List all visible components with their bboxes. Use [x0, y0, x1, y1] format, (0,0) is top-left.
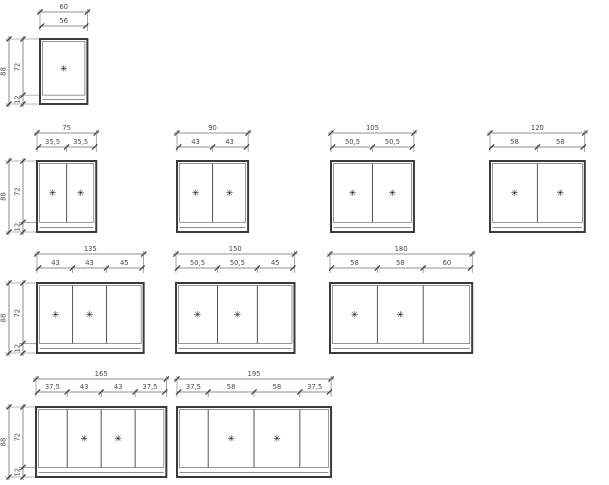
dim-label-total-width: 60: [59, 3, 68, 11]
dim-label-door-width: 35,5: [73, 138, 88, 146]
dim-label-total-height: 88: [0, 67, 8, 76]
dim-label-door-width: 45: [120, 259, 129, 267]
dim-label-door-width: 56: [59, 17, 68, 25]
dim-label-door-width: 60: [443, 259, 452, 267]
door-knob-icon: ✳: [194, 310, 202, 320]
door-knob-icon: ✳: [234, 310, 242, 320]
dim-label-plinth-height: 12: [14, 468, 22, 477]
dim-label-total-width: 165: [95, 370, 108, 378]
dim-label-total-width: 135: [84, 245, 97, 253]
dim-label-total-width: 180: [395, 245, 408, 253]
dim-label-door-height: 72: [14, 187, 22, 196]
dim-label-total-height: 88: [0, 314, 8, 323]
dim-label-door-height: 72: [14, 433, 22, 442]
dim-label-plinth-height: 12: [14, 344, 22, 353]
dim-label-door-width: 35,5: [45, 138, 60, 146]
dim-label-door-width: 50,5: [385, 138, 400, 146]
dim-label-door-width: 50,5: [230, 259, 245, 267]
dim-label-door-width: 58: [396, 259, 405, 267]
dim-label-plinth-height: 12: [14, 95, 22, 104]
dim-label-door-width: 45: [271, 259, 280, 267]
dim-label-total-width: 120: [531, 124, 544, 132]
door-knob-icon: ✳: [557, 189, 565, 199]
dim-label-total-width: 75: [62, 124, 71, 132]
door-knob-icon: ✳: [227, 434, 235, 444]
dim-label-door-height: 72: [14, 63, 22, 72]
dim-label-door-width: 43: [225, 138, 234, 146]
door-knob-icon: ✳: [60, 64, 68, 74]
dim-label-door-width: 58: [510, 138, 519, 146]
door-knob-icon: ✳: [397, 310, 405, 320]
diagram-svg: 6056✳8872127535,535,5✳✳904343✳✳10550,550…: [0, 0, 609, 485]
dim-label-door-width: 37,5: [186, 383, 201, 391]
dim-label-door-height: 72: [14, 309, 22, 318]
dim-label-door-width: 58: [556, 138, 565, 146]
door-knob-icon: ✳: [114, 434, 122, 444]
door-knob-icon: ✳: [77, 189, 85, 199]
dim-label-door-width: 37,5: [307, 383, 322, 391]
dim-label-door-width: 43: [85, 259, 94, 267]
door-knob-icon: ✳: [273, 434, 281, 444]
dim-label-door-width: 43: [191, 138, 200, 146]
door-knob-icon: ✳: [49, 189, 57, 199]
dim-label-total-width: 90: [208, 124, 217, 132]
dim-label-total-width: 150: [229, 245, 242, 253]
dim-label-plinth-height: 12: [14, 223, 22, 232]
drawing-sheet: 6056✳8872127535,535,5✳✳904343✳✳10550,550…: [0, 0, 609, 485]
dim-label-door-width: 43: [80, 383, 89, 391]
dim-label-total-height: 88: [0, 192, 8, 201]
door-knob-icon: ✳: [52, 310, 60, 320]
dim-label-door-width: 37,5: [45, 383, 60, 391]
dim-label-door-width: 37,5: [142, 383, 157, 391]
dim-label-door-width: 43: [51, 259, 60, 267]
door-knob-icon: ✳: [226, 189, 234, 199]
dim-label-door-width: 43: [114, 383, 123, 391]
door-knob-icon: ✳: [80, 434, 88, 444]
door-knob-icon: ✳: [86, 310, 94, 320]
dim-label-door-width: 50,5: [345, 138, 360, 146]
dim-label-total-width: 195: [248, 370, 261, 378]
dim-label-door-width: 58: [273, 383, 282, 391]
door-knob-icon: ✳: [349, 189, 357, 199]
door-knob-icon: ✳: [192, 189, 200, 199]
dim-label-door-width: 50,5: [190, 259, 205, 267]
door-knob-icon: ✳: [351, 310, 359, 320]
door-knob-icon: ✳: [389, 189, 397, 199]
dim-label-door-width: 58: [350, 259, 359, 267]
dim-label-door-width: 58: [227, 383, 236, 391]
dim-label-total-width: 105: [366, 124, 379, 132]
dim-label-total-height: 88: [0, 438, 8, 447]
door-knob-icon: ✳: [511, 189, 519, 199]
